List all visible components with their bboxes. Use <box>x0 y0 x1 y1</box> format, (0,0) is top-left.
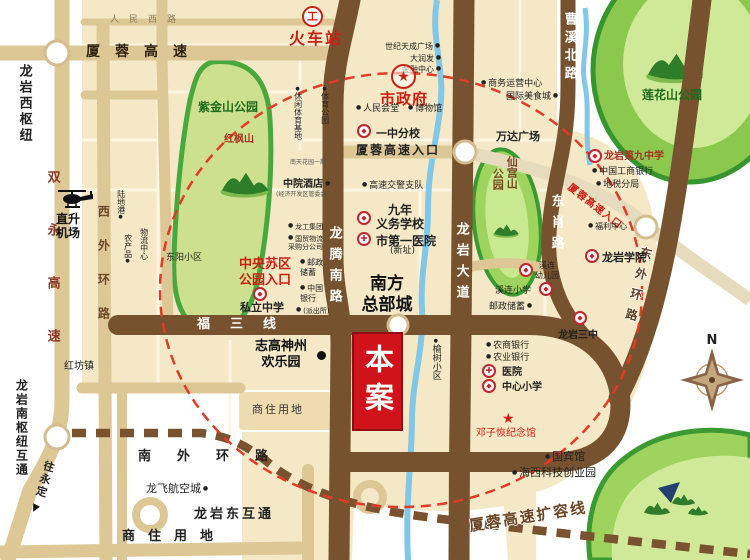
road-label-xiwai-ring: 西外环路 <box>96 205 110 341</box>
label-tax-bureau: 地税分局 <box>596 180 639 191</box>
label-longgong-group: 龙工集团 <box>288 222 323 231</box>
memorial-star-icon: ★ <box>502 412 515 426</box>
label-bank-of-china: 中国 银行 <box>300 284 323 303</box>
road-label-caoxi-beilu: 曹溪北路 <box>561 12 577 84</box>
label-rural-commercial-bank: 农商银行 <box>486 341 529 352</box>
road-label-longteng-nanlu: 龙腾南路 <box>326 226 342 310</box>
label-state-guesthouse: 国宾馆 <box>545 450 585 463</box>
label-xilian-primary: 溪连小学 <box>495 286 531 297</box>
label-ninth-middle-school: 龙岩第九中学 <box>604 151 664 163</box>
government-icon <box>391 64 416 89</box>
label-zhigao-amusement-park: 志高神州 欢乐园 <box>248 339 314 370</box>
label-darunfa: 大润发 <box>410 54 441 64</box>
school-icon <box>588 149 602 163</box>
label-new-site: (新址) <box>390 246 415 257</box>
label-longyan-south-hub: 龙岩南枢纽互通 <box>14 379 28 477</box>
label-third-middle-school: 龙岩三中 <box>558 330 598 342</box>
label-wanda-plaza: 万达广场 <box>496 130 540 143</box>
label-highway-police: 高速交警支队 <box>362 181 423 192</box>
label-expressway-entrance: 厦蓉高速入口 <box>356 143 440 157</box>
school-icon <box>253 287 267 301</box>
label-xilian-kindergarten: 溪连 幼儿园 <box>535 261 559 280</box>
label-nine-year-school: 九年 义务学校 <box>374 203 426 232</box>
label-longyan-west-hub: 龙岩西枢纽 <box>16 64 32 144</box>
label-postal-savings-east: 邮政储蓄 <box>489 302 532 313</box>
train-station-icon <box>302 6 323 27</box>
school-icon <box>357 124 371 138</box>
compass-icon: N <box>680 333 744 412</box>
school-icon <box>573 311 587 325</box>
label-longfei-aviation-city: 龙飞航空城 <box>146 482 208 495</box>
school-icon <box>482 379 496 393</box>
label-xiangongshan: 仙宫山 <box>505 156 518 189</box>
label-development-zone: (经济开发区管委会) <box>276 191 329 198</box>
helicopter-icon <box>56 188 96 210</box>
road-label-longyan-dadao: 龙岩大道 <box>453 222 469 306</box>
label-yushu-xiaoqu: 榆树小区 <box>430 338 441 380</box>
label-agricultural-bank: 农业银行 <box>486 353 529 364</box>
label-nongchanpin: 农产品 <box>123 234 133 264</box>
label-police-station: (派出所) <box>296 306 330 315</box>
road-label-xiarong-expressway: 厦蓉高速 <box>86 44 202 61</box>
label-train-station: 火车站 <box>289 29 343 48</box>
label-dongyang-xiaoqu: 东阳小区 <box>166 253 202 264</box>
label-mixed-use-block: 商住用地 <box>252 403 304 416</box>
location-map: N 人民西路 厦蓉高速 龙岩西枢纽 双永高速 西外环路 直升 机场 陆地港 物流… <box>0 0 750 560</box>
school-icon <box>519 263 533 277</box>
label-zijinshan-park: 紫金山公园 <box>198 100 258 114</box>
label-lianhuashan-park: 莲花山公园 <box>642 88 702 102</box>
road-label-nanwai-ring: 南外环路 <box>138 449 294 465</box>
label-business-operation-center: 商务运营中心 <box>481 79 542 90</box>
compass-n-label: N <box>707 333 718 348</box>
label-shiji-tiancheng-plaza: 世纪天成广场 <box>385 42 440 52</box>
label-heliport: 直升 机场 <box>56 212 80 241</box>
school-icon <box>539 282 553 296</box>
label-international-food-city: 国际美食城 <box>506 92 558 103</box>
project-site-marker: 本案 <box>352 332 403 431</box>
label-zhongyuan-hotel: 中院酒店 <box>283 179 330 191</box>
label-hongfang-town: 红坊镇 <box>64 361 94 373</box>
label-yizhong-branch: 一中分校 <box>376 127 420 140</box>
school-icon <box>357 211 371 225</box>
label-museum: 博物馆 <box>408 104 442 115</box>
label-ludigang: 陆地港 <box>116 190 126 220</box>
label-private-school: 私立中学 <box>240 301 284 314</box>
label-southern-headquarters-city: 南方 总部城 <box>348 274 426 317</box>
label-haixi-tech-park: 海西科技创业园 <box>512 466 596 479</box>
poi-dot-icon <box>317 351 326 360</box>
label-sports-park: 体育公园 <box>320 86 330 124</box>
label-leisure-sports-base: 休闲体育基地 <box>293 86 303 140</box>
label-central-primary: 中心小学 <box>502 382 542 394</box>
label-logistics-center: 物流中心 <box>139 228 149 260</box>
label-peoples-hall: 人民会堂 <box>356 104 399 115</box>
label-nantian-phase1: 南天花园一期 <box>290 159 326 166</box>
label-hongfengshan: 红枫山 <box>224 134 254 146</box>
hospital-icon <box>482 364 496 378</box>
label-welfare-center: 福利中心 <box>588 222 627 232</box>
label-icbc: 中国工商银行 <box>592 167 653 178</box>
label-longyan-university: 龙岩学院 <box>602 251 646 264</box>
label-guomao-logistics: 国贸物流 采购分公司 <box>288 234 323 252</box>
road-label-fusanxian: 福三线 <box>197 317 296 333</box>
road-label-dongxiao-lu: 东肖路 <box>548 194 564 257</box>
school-icon <box>585 249 599 263</box>
label-longyan-east-interchange: 龙岩东互通 <box>194 507 274 523</box>
label-hospital: 医院 <box>502 367 522 379</box>
road-label-renmin-xi: 人民西路 <box>110 15 186 26</box>
project-site-label: 本案 <box>357 344 399 420</box>
label-xiangongshan-park: 公园 <box>491 168 504 190</box>
label-mixed-use-bottom: 商住用地 <box>122 529 226 545</box>
label-postal-savings-west: 邮政 储蓄 <box>300 258 323 277</box>
hospital-icon <box>357 232 371 246</box>
label-dengzihui-memorial: 邓子恢纪念馆 <box>476 428 536 440</box>
label-central-soviet-park-entrance: 中央苏区 公园入口 <box>232 257 298 288</box>
